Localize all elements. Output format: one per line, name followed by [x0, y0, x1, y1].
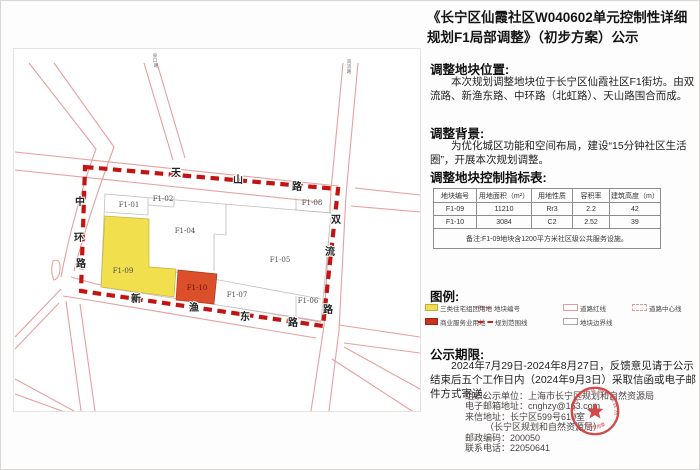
legend-label: 地块边界线 — [580, 317, 613, 327]
seal-star-icon — [587, 403, 604, 419]
cell: F1-10 — [434, 216, 477, 229]
legend: 三类住宅组团用地 F1-xx 地块编号 道路红线 道路中心线 商业服务业用地 规… — [425, 303, 697, 337]
parcel-boundary-swatch — [563, 318, 578, 325]
svg-text:东: 东 — [240, 310, 250, 323]
svg-text:F1-08: F1-08 — [302, 199, 323, 207]
legend-item-commercial: 商业服务业用地 — [425, 317, 486, 326]
indicator-table: 地块编号 用地面积（m²） 用地性质 容积率 建筑高度（m） F1-09 112… — [433, 188, 661, 249]
planning-map-pane: 天 山 路 中 环 路 双 流 路 新 渔 东 路 泉 口 路 双 流 路 — [13, 48, 421, 412]
legend-item-parcel-number: F1-xx 地块编号 — [478, 303, 520, 312]
table-row: F1-09 11210 Rr3 2.2 42 — [434, 203, 661, 216]
legend-item-planning-boundary: 规划范围线 — [478, 317, 528, 326]
contact-email: 电子邮箱地址：cnghzy@163.com — [465, 401, 654, 411]
svg-text:F1-04: F1-04 — [175, 227, 196, 235]
svg-text:路: 路 — [347, 68, 352, 75]
svg-text:路: 路 — [76, 257, 87, 270]
table-note-row: 备注:F1-09地块含1200平方米社区级公共服务设施。 — [434, 229, 661, 249]
section-location-body: 本次规划调整地块位于长宁区仙霞社区F1街坊。由双流路、新渔东路、中环路（北虹路）… — [430, 76, 696, 104]
planning-map: 天 山 路 中 环 路 双 流 路 新 渔 东 路 泉 口 路 双 流 路 — [14, 49, 420, 411]
svg-text:路: 路 — [292, 180, 303, 193]
contact-phone: 联系电话：22050641 — [465, 443, 654, 453]
svg-text:山: 山 — [233, 173, 243, 186]
public-notice-page: 天 山 路 中 环 路 双 流 路 新 渔 东 路 泉 口 路 双 流 路 — [0, 0, 700, 470]
cell: 39 — [610, 216, 661, 229]
cell: F1-09 — [434, 203, 477, 216]
svg-text:中: 中 — [75, 195, 85, 208]
table-row: F1-10 3084 C2 2.52 39 — [434, 216, 661, 229]
road-centerline-swatch — [632, 304, 647, 311]
svg-text:F1-10: F1-10 — [187, 284, 208, 292]
svg-text:天: 天 — [171, 167, 182, 179]
parcel-number-swatch: F1-xx — [478, 305, 492, 311]
cell: 2.2 — [573, 203, 610, 216]
cell: 3084 — [477, 216, 532, 229]
legend-label: 道路中心线 — [649, 303, 682, 313]
cell: 42 — [610, 203, 661, 216]
planning-boundary-swatch — [478, 321, 493, 323]
cell: 11210 — [477, 203, 532, 216]
indicator-table-heading: 调整地块控制指标表: — [430, 167, 547, 186]
legend-item-parcel-boundary: 地块边界线 — [563, 317, 613, 326]
svg-text:F1-01: F1-01 — [119, 201, 140, 209]
col-parcel-id: 地块编号 — [434, 189, 477, 203]
cell: C2 — [532, 216, 573, 229]
col-far: 容积率 — [573, 189, 610, 203]
col-land-use: 用地性质 — [532, 189, 573, 203]
road-redline-swatch — [563, 304, 578, 311]
section-background-body: 为优化城区功能和空间布局，建设“15分钟社区生活圈”，开展本次规划调整。 — [430, 140, 696, 168]
legend-item-road-centerline: 道路中心线 — [632, 303, 682, 312]
notice-title: 《长宁区仙霞社区W040602单元控制性详细规划F1局部调整》（初步方案）公示 — [427, 8, 695, 47]
official-seal: 上海市长宁区规划和自然资源局 公示专用章 — [568, 384, 622, 438]
svg-text:流: 流 — [325, 245, 335, 258]
contact-address: 来信地址：长宁区599号610室 — [465, 412, 654, 422]
col-land-area: 用地面积（m²） — [477, 189, 532, 203]
legend-item-road-redline: 道路红线 — [563, 303, 606, 312]
table-note: 备注:F1-09地块含1200平方米社区级公共服务设施。 — [434, 229, 661, 249]
svg-text:新: 新 — [131, 292, 141, 305]
contact-organizer: 组织公示单位：上海市长宁区规划和自然资源局 — [465, 391, 654, 401]
indicator-table-header-row: 地块编号 用地面积（m²） 用地性质 容积率 建筑高度（m） — [434, 189, 661, 203]
contact-block: 组织公示单位：上海市长宁区规划和自然资源局 电子邮箱地址：cnghzy@163.… — [465, 391, 654, 454]
residential-swatch — [425, 304, 438, 311]
svg-text:F1-02: F1-02 — [153, 195, 174, 203]
svg-text:环: 环 — [74, 232, 84, 244]
svg-text:F1-09: F1-09 — [113, 267, 134, 275]
svg-text:双: 双 — [331, 214, 341, 226]
svg-text:F1-05: F1-05 — [270, 256, 291, 264]
svg-text:渔: 渔 — [189, 301, 199, 314]
cell: 2.52 — [573, 216, 610, 229]
seal-bottom-text: 公示专用章 — [583, 420, 607, 430]
legend-label: 道路红线 — [580, 303, 606, 313]
legend-label: 地块编号 — [494, 303, 520, 313]
notice-text-column: 《长宁区仙霞社区W040602单元控制性详细规划F1局部调整》（初步方案）公示 … — [425, 0, 697, 470]
svg-text:路: 路 — [323, 303, 334, 316]
cell: Rr3 — [532, 203, 573, 216]
contact-address2: （长宁区规划和自然资源局） — [465, 422, 654, 432]
col-height: 建筑高度（m） — [610, 189, 661, 203]
contact-postcode: 邮政编码：200050 — [465, 433, 654, 443]
svg-text:路: 路 — [154, 62, 159, 69]
svg-text:F1-07: F1-07 — [227, 291, 248, 299]
svg-text:路: 路 — [288, 316, 299, 329]
commercial-swatch — [425, 318, 438, 325]
legend-label: 规划范围线 — [495, 317, 528, 327]
svg-text:F1-06: F1-06 — [298, 297, 319, 305]
